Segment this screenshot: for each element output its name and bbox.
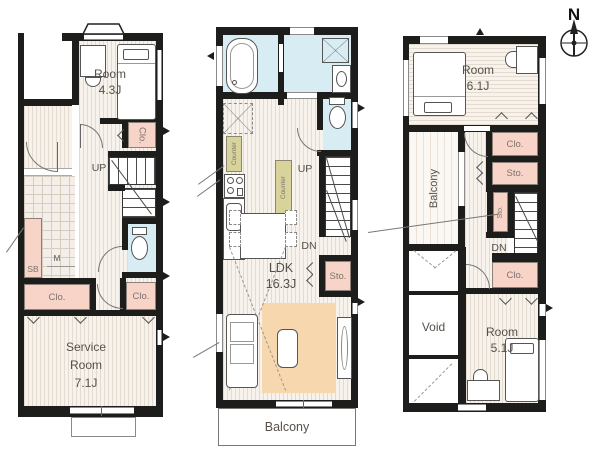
window (157, 330, 162, 345)
wall (108, 151, 156, 157)
wall (486, 232, 514, 238)
stairs-down-label: DN (488, 242, 510, 254)
chair (229, 232, 241, 247)
balcony-label: Balcony (428, 169, 440, 208)
room-name: Room (80, 66, 140, 82)
window (539, 304, 546, 316)
wall (486, 185, 538, 192)
desk (516, 46, 538, 74)
counter-label: Counter (231, 142, 238, 165)
opening-arrow (163, 333, 170, 341)
sliding-door (276, 401, 332, 407)
window (352, 200, 358, 230)
opening-arrow (358, 298, 365, 306)
window (539, 340, 546, 400)
sliding-door (287, 92, 317, 99)
window (458, 404, 486, 411)
room-size: 5.1J (470, 340, 534, 356)
wall (317, 99, 323, 130)
bathtub-drain (232, 80, 237, 85)
sliding-door-tick (101, 406, 102, 416)
stairs-up-label: UP (88, 162, 110, 174)
sliding-door-tick (303, 400, 304, 408)
storage: Sto. (493, 192, 508, 232)
service-room-size: 7.1J (46, 374, 126, 392)
wall (72, 33, 79, 105)
window (290, 27, 314, 35)
opening-arrow (163, 127, 170, 135)
void-partition (409, 355, 458, 359)
door-leaf (57, 142, 58, 172)
door-opening (279, 44, 283, 72)
storage-label: Sto. (330, 271, 347, 282)
vent-mark (476, 28, 484, 35)
window (420, 36, 448, 44)
room-size: 6.1J (448, 78, 508, 94)
wall (319, 150, 325, 237)
stairs-down-label: DN (298, 240, 320, 252)
floor-plan-sheet: Clo. SB Clo. Clo. M Room 4.3J UP Service… (0, 0, 600, 456)
wall (319, 291, 358, 297)
dining-table (240, 213, 286, 259)
service-room-line1: Service (46, 338, 126, 356)
north-compass-icon: N (552, 2, 600, 66)
window (216, 46, 223, 86)
closet-label: Clo. (507, 270, 524, 281)
service-room-line2: Room (46, 356, 126, 374)
kitchen-counter: Counter (226, 136, 242, 172)
closet-label: Clo. (49, 292, 66, 303)
living-table (277, 329, 298, 368)
ldk-size: 16.3J (253, 276, 309, 292)
chair (473, 369, 488, 381)
bed-line (414, 96, 465, 97)
shoe-box: SB (24, 218, 42, 278)
ldk-name: LDK (253, 260, 309, 276)
closet: Clo. (128, 122, 156, 148)
closet: Clo. (24, 284, 90, 310)
sofa-cushion (230, 344, 254, 364)
wall (216, 27, 358, 35)
chair (229, 210, 241, 225)
balcony-label: Balcony (265, 420, 309, 434)
door-leaf (80, 124, 81, 148)
closet-label: Clo. (133, 291, 150, 302)
porch (71, 417, 136, 437)
stairs-up-label: UP (294, 163, 316, 175)
wall (122, 224, 128, 250)
floor1-stairs-upper (108, 157, 156, 185)
washing-machine-pan (223, 103, 253, 134)
closet: Clo. (492, 262, 538, 288)
sliding-door (458, 152, 465, 206)
toilet-tank (132, 227, 147, 235)
desk (467, 380, 500, 401)
window (157, 50, 162, 100)
chair (285, 210, 297, 225)
stove-burner (227, 187, 234, 194)
ldk-label: LDK 16.3J (253, 260, 309, 294)
window (216, 314, 223, 352)
pillow (424, 102, 452, 113)
bay-window (80, 23, 127, 35)
balcony-label-box: Balcony (424, 158, 444, 220)
toilet-tank (329, 97, 345, 105)
toilet-bowl (131, 236, 148, 260)
storage-label: Sto. (507, 168, 524, 179)
meter-label: M (48, 254, 66, 265)
door-opening (464, 126, 490, 131)
closet-label: Clo. (137, 127, 148, 144)
room-label: Room 5.1J (470, 324, 534, 358)
bed-line (118, 63, 155, 64)
storage: Sto. (492, 162, 538, 185)
tv-board-detail (341, 326, 348, 370)
room-name: Room (470, 324, 534, 340)
wall (24, 99, 72, 106)
wall (122, 218, 163, 224)
closet: Clo. (492, 132, 538, 156)
wall (492, 253, 538, 262)
balcony: Balcony (218, 408, 356, 446)
opening-arrow (163, 198, 170, 206)
wall (508, 192, 514, 232)
counter-label: Counter (280, 176, 287, 199)
room-label: Room 4.3J (80, 66, 140, 100)
window (539, 58, 546, 104)
void-partition (409, 291, 458, 295)
void-label: Void (409, 320, 458, 333)
stove-grill (237, 188, 243, 196)
opening-arrow (207, 52, 214, 60)
window (403, 60, 409, 116)
rug (262, 303, 336, 393)
wall (90, 284, 96, 310)
wall (108, 185, 125, 191)
storage-label: Sto. (497, 206, 504, 218)
room-size: 4.3J (80, 82, 140, 98)
room-name: Room (448, 62, 508, 78)
room-label: Room 6.1J (448, 62, 508, 96)
opening-arrow (546, 304, 553, 312)
chair (285, 232, 297, 247)
toilet-bowl (329, 106, 346, 129)
stove-burner (236, 177, 243, 184)
meter-line (47, 266, 75, 267)
shoe-box-label: SB (27, 264, 38, 274)
wall (458, 247, 466, 405)
shower-unit (322, 38, 349, 63)
pillow (123, 49, 149, 60)
closet-label: Clo. (507, 139, 524, 150)
opening-arrow (358, 104, 365, 112)
storage: Sto. (325, 261, 351, 291)
sliding-door (70, 407, 134, 414)
service-room-label: Service Room 7.1J (46, 338, 126, 392)
island-counter: Counter (275, 160, 292, 215)
wash-basin (336, 71, 347, 87)
closet: Clo. (126, 282, 156, 310)
stove-burner (227, 177, 234, 184)
sofa-cushion (230, 322, 254, 342)
wall (122, 272, 163, 278)
opening-arrow (163, 272, 170, 280)
wall (24, 310, 163, 316)
